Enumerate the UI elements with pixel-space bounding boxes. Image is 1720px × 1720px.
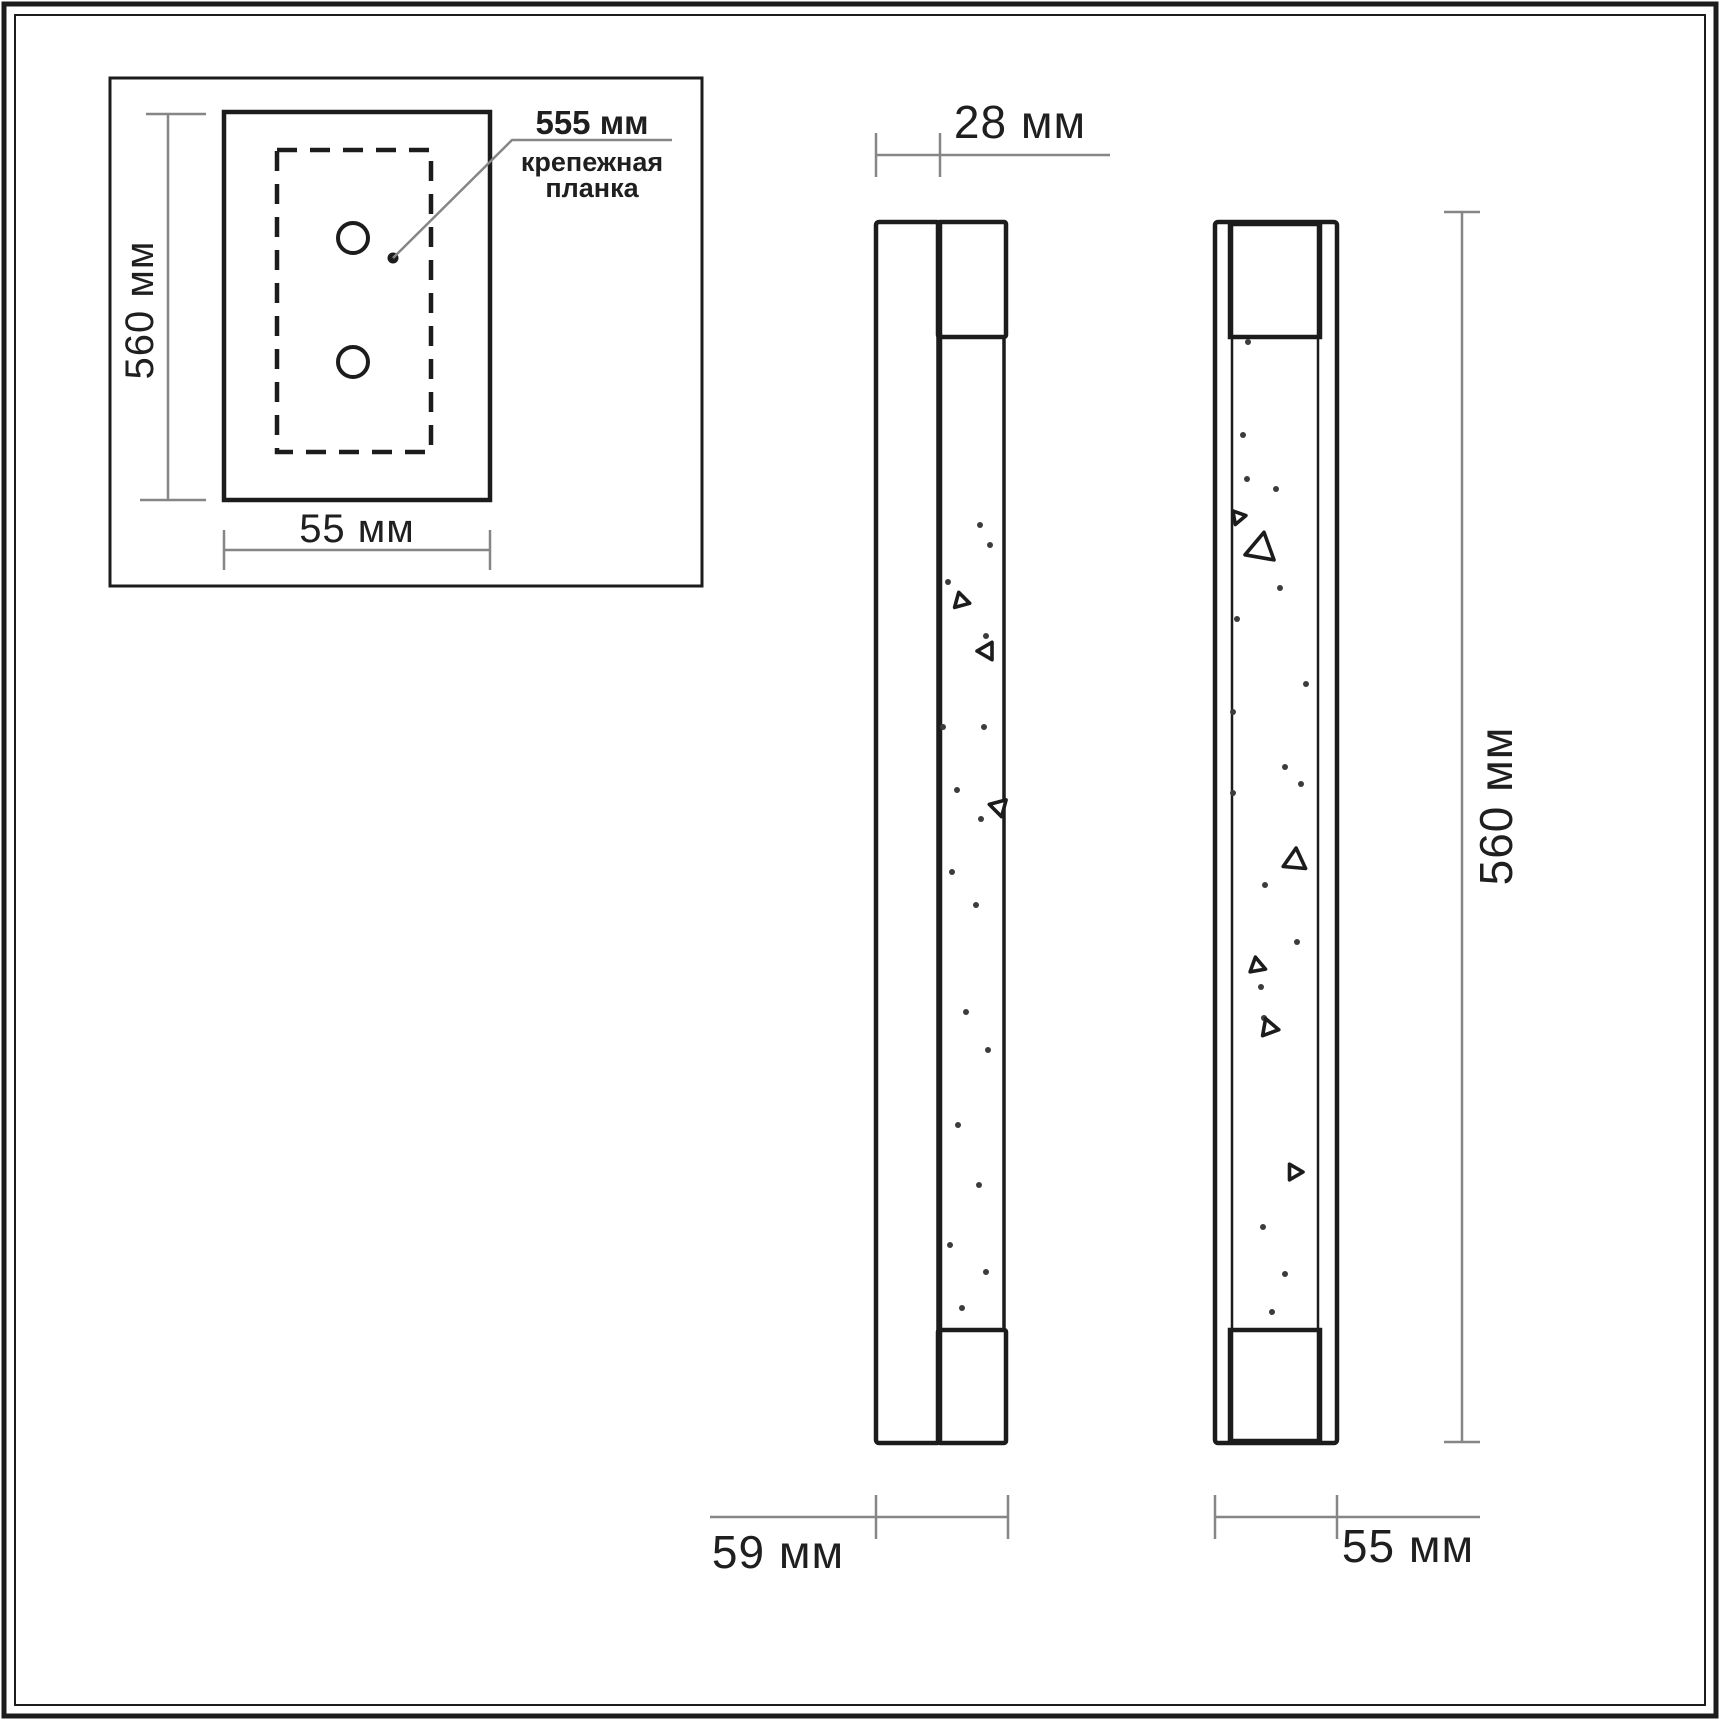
mounting-plate-dashed-outline — [277, 150, 431, 452]
speckle-dot — [976, 1182, 982, 1188]
speckle-dot — [1282, 764, 1288, 770]
speckle-dot — [987, 542, 993, 548]
side-back-plate — [876, 222, 940, 1443]
front-top-cap — [1230, 224, 1320, 337]
mounting-hole-top — [338, 223, 368, 253]
side-view: 28 мм 59 мм — [710, 96, 1110, 1578]
glass-triangle — [1283, 848, 1305, 869]
front-view: 560 мм 55 мм — [1215, 212, 1522, 1572]
inset-height-label: 560 мм — [118, 241, 162, 380]
glass-triangle — [1245, 532, 1274, 560]
speckle-dot — [1294, 939, 1300, 945]
speckle-dot — [1298, 781, 1304, 787]
speckle-dot — [1277, 585, 1283, 591]
speckle-dot — [1282, 1271, 1288, 1277]
front-bottom-cap — [1230, 1330, 1320, 1441]
technical-drawing-page: 555 мм крепежная планка 560 мм 55 мм 28 … — [0, 0, 1720, 1720]
front-diffuser-triangles — [1233, 511, 1306, 1180]
mounting-detail-inset: 555 мм крепежная планка 560 мм 55 мм — [110, 78, 702, 586]
speckle-dot — [954, 787, 960, 793]
glass-triangle — [1290, 1164, 1304, 1180]
mounting-hole-bottom — [338, 347, 368, 377]
speckle-dot — [973, 902, 979, 908]
speckle-dot — [983, 633, 989, 639]
speckle-dot — [977, 522, 983, 528]
side-bottom-cap — [938, 1330, 1006, 1443]
glass-triangle — [1250, 957, 1265, 972]
callout-name-line2: планка — [545, 173, 639, 203]
outer-frame — [4, 4, 1716, 1716]
speckle-dot — [1244, 476, 1250, 482]
speckle-dot — [1269, 1309, 1275, 1315]
glass-triangle — [1233, 511, 1246, 525]
speckle-dot — [1230, 790, 1236, 796]
speckle-dot — [983, 1269, 989, 1275]
glass-triangle — [989, 800, 1006, 817]
callout-length-label: 555 мм — [535, 104, 648, 141]
speckle-dot — [949, 869, 955, 875]
speckle-dot — [955, 1122, 961, 1128]
speckle-dot — [1273, 486, 1279, 492]
side-diffuser-speckles — [940, 522, 993, 1311]
front-height-label: 560 мм — [1470, 727, 1522, 886]
speckle-dot — [1234, 616, 1240, 622]
speckle-dot — [1240, 432, 1246, 438]
back-plate-depth-label: 28 мм — [954, 96, 1086, 148]
speckle-dot — [1262, 882, 1268, 888]
total-depth-label: 59 мм — [712, 1526, 844, 1578]
speckle-dot — [945, 579, 951, 585]
speckle-dot — [1303, 681, 1309, 687]
speckle-dot — [963, 1009, 969, 1015]
speckle-dot — [947, 1242, 953, 1248]
wall-lamp-dimension-drawing: 555 мм крепежная планка 560 мм 55 мм 28 … — [0, 0, 1720, 1720]
side-diffuser — [938, 337, 1004, 1330]
side-top-cap — [938, 222, 1006, 337]
speckle-dot — [1258, 984, 1264, 990]
inner-frame — [15, 15, 1705, 1705]
glass-triangle — [1263, 1019, 1279, 1036]
front-width-label: 55 мм — [1342, 1520, 1474, 1572]
speckle-dot — [1260, 1224, 1266, 1230]
glass-triangle — [955, 592, 970, 607]
side-diffuser-triangles — [955, 592, 1007, 816]
speckle-dot — [985, 1047, 991, 1053]
speckle-dot — [1230, 709, 1236, 715]
speckle-dot — [981, 724, 987, 730]
speckle-dot — [1245, 339, 1251, 345]
inset-width-label: 55 мм — [299, 507, 415, 551]
speckle-dot — [959, 1305, 965, 1311]
fixture-back-outline — [224, 112, 490, 500]
speckle-dot — [978, 816, 984, 822]
glass-triangle — [977, 642, 992, 659]
speckle-dot — [940, 724, 946, 730]
